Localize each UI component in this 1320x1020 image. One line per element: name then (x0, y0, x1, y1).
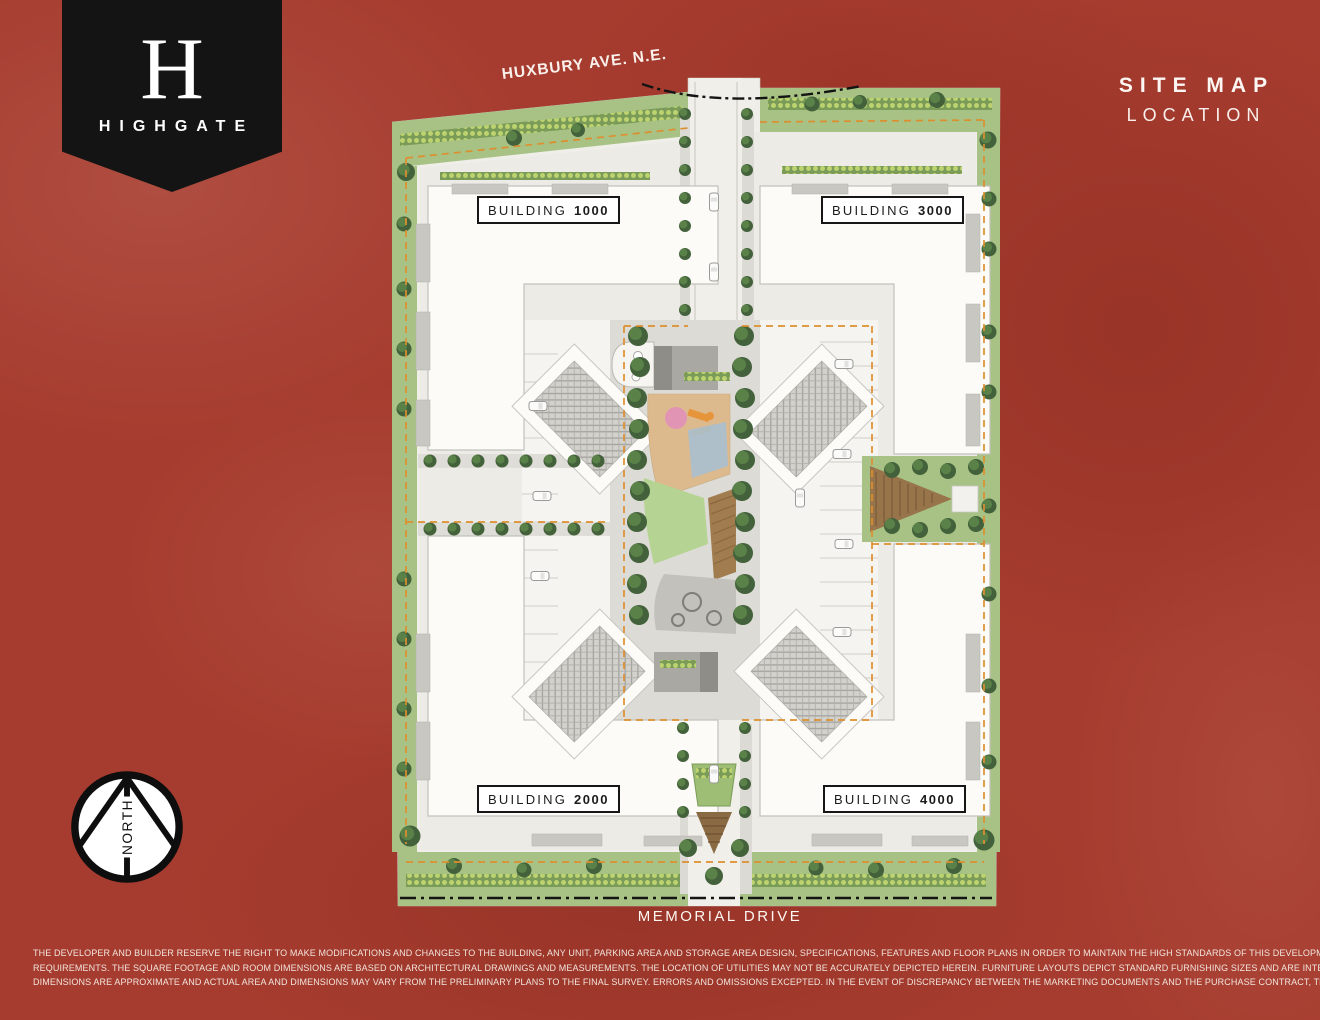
north-compass-icon: NORTH (68, 768, 186, 886)
page-background: H HIGHGATE SITE MAP LOCATION (0, 0, 1320, 1020)
disclaimer-line-1: THE DEVELOPER AND BUILDER RESERVE THE RI… (33, 946, 1295, 961)
building-label-name: BUILDING (488, 792, 567, 807)
highgate-logo: H HIGHGATE (62, 0, 282, 192)
building-label-number: 4000 (920, 792, 955, 807)
building-label-name: BUILDING (832, 203, 911, 218)
logo-wordmark: HIGHGATE (62, 118, 282, 136)
disclaimer-text: THE DEVELOPER AND BUILDER RESERVE THE RI… (33, 946, 1295, 990)
disclaimer-line-3: DIMENSIONS ARE APPROXIMATE AND ACTUAL AR… (33, 975, 1295, 990)
building-label-3000: BUILDING 3000 (821, 196, 964, 224)
building-label-2000: BUILDING 2000 (477, 785, 620, 813)
page-subtitle: LOCATION (1108, 105, 1278, 126)
building-label-1000: BUILDING 1000 (477, 196, 620, 224)
title-block: SITE MAP LOCATION (1108, 74, 1278, 126)
page-title: SITE MAP (1108, 74, 1278, 98)
building-label-number: 1000 (574, 203, 609, 218)
logo-monogram: H (62, 26, 282, 114)
disclaimer-line-2: REQUIREMENTS. THE SQUARE FOOTAGE AND ROO… (33, 961, 1295, 976)
building-label-number: 2000 (574, 792, 609, 807)
building-label-4000: BUILDING 4000 (823, 785, 966, 813)
building-label-number: 3000 (918, 203, 953, 218)
building-label-name: BUILDING (834, 792, 913, 807)
street-label-memorial: MEMORIAL DRIVE (620, 908, 820, 925)
building-label-name: BUILDING (488, 203, 567, 218)
compass-label: NORTH (120, 799, 135, 855)
